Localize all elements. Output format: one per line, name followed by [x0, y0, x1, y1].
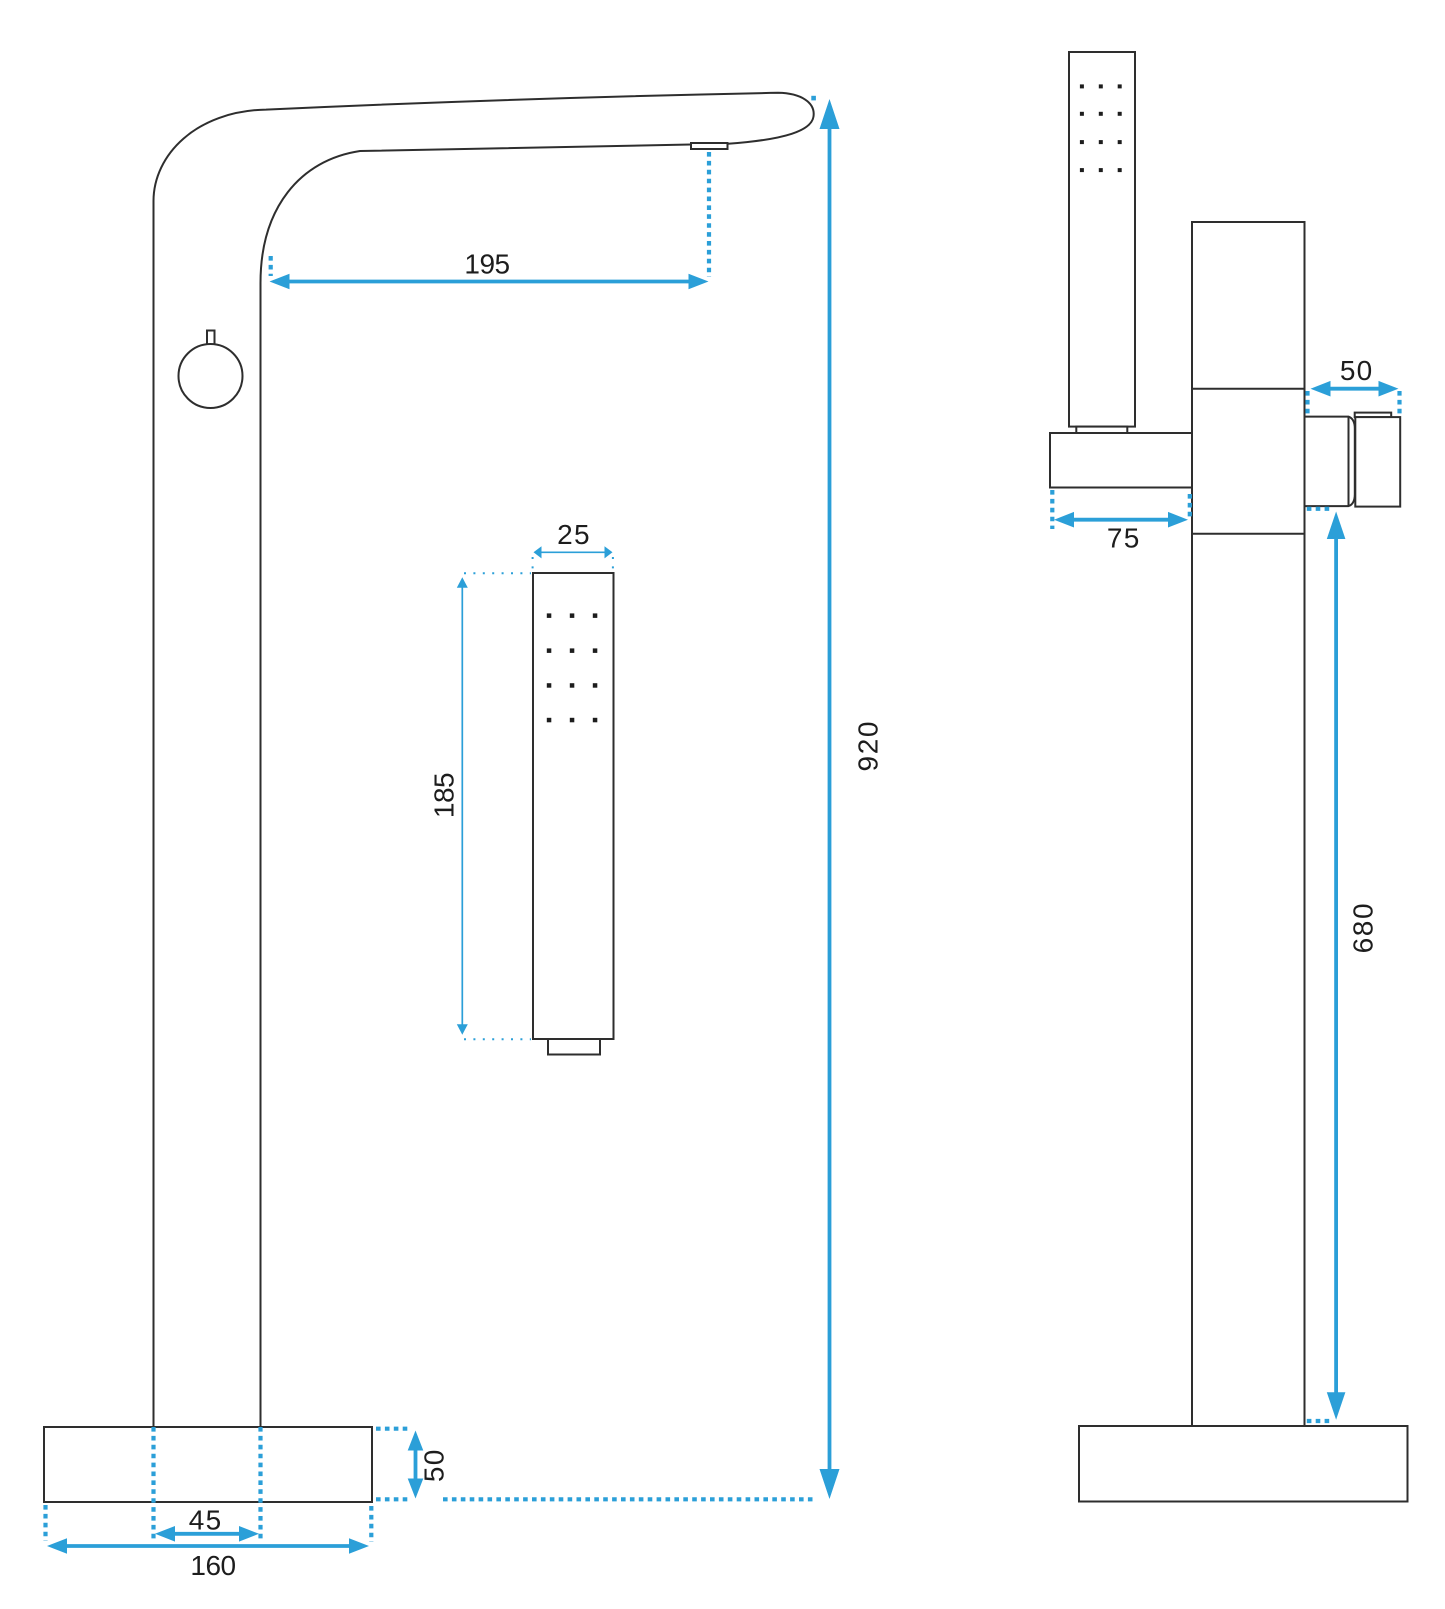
svg-text:680: 680 [1348, 902, 1379, 954]
svg-text:160: 160 [190, 1550, 235, 1581]
svg-text:50: 50 [1340, 355, 1374, 386]
svg-text:185: 185 [429, 773, 460, 818]
svg-text:75: 75 [1107, 522, 1141, 553]
svg-text:25: 25 [557, 519, 591, 550]
svg-text:50: 50 [419, 1448, 450, 1482]
svg-text:45: 45 [189, 1505, 223, 1536]
svg-text:920: 920 [853, 720, 884, 772]
svg-text:195: 195 [464, 249, 509, 280]
